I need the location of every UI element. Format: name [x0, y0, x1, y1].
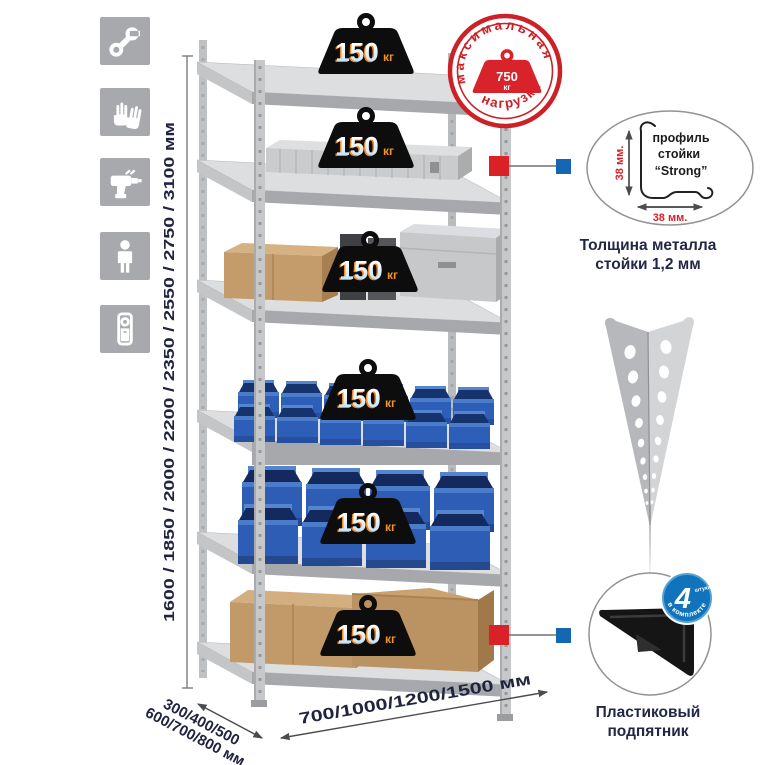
blue-marker-square	[556, 628, 571, 643]
svg-text:стойки: стойки	[658, 147, 700, 161]
foot-callout-connector	[489, 625, 571, 645]
svg-text:стойки 1,2 мм: стойки 1,2 мм	[595, 256, 700, 273]
svg-text:38 мм.: 38 мм.	[653, 212, 688, 224]
product-infographic: 150 150 кг 150 150 кг 150 150 кг 150 150…	[0, 0, 765, 765]
height-dimension: 1600 / 1850 / 2000 / 2200 / 2350 / 2550 …	[161, 56, 193, 688]
profile-caption: Толщина металла стойки 1,2 мм	[580, 237, 717, 273]
shelf-load-weight-2: 150 150 кг	[318, 110, 413, 169]
svg-text:кг: кг	[383, 50, 394, 64]
depth-dimension: 300/400/500 600/700/800 мм	[142, 690, 262, 765]
svg-text:150: 150	[337, 507, 380, 537]
cardboard-box	[224, 243, 338, 302]
svg-text:Толщина металла: Толщина металла	[580, 237, 717, 254]
svg-text:подпятник: подпятник	[607, 723, 688, 740]
svg-text:Пластиковый: Пластиковый	[596, 704, 701, 721]
svg-text:750: 750	[496, 69, 518, 84]
svg-text:150: 150	[335, 131, 378, 161]
profile-detail-circle: 38 мм. 38 мм. профиль стойки “Strong”	[587, 111, 753, 225]
red-marker-square	[489, 156, 509, 176]
svg-text:150: 150	[339, 255, 382, 285]
gloves-icon	[100, 88, 150, 136]
svg-text:кг: кг	[385, 396, 396, 410]
rack-illustration: 150 150 кг 150 150 кг 150 150 кг 150 150…	[197, 16, 513, 722]
wrench-icon	[100, 17, 150, 65]
shelf-load-weight-4: 150 150 кг	[320, 362, 415, 421]
quantity-badge: 4 штуки в комплекте	[662, 573, 713, 624]
drill-icon	[100, 158, 150, 206]
svg-text:кг: кг	[383, 144, 394, 158]
profile-callout-connector	[489, 156, 571, 176]
svg-text:кг: кг	[385, 632, 396, 646]
svg-text:38 мм.: 38 мм.	[614, 146, 626, 181]
person-icon	[100, 232, 150, 280]
level-tool-icon	[100, 305, 150, 353]
foot-caption: Пластиковый подпятник	[596, 704, 701, 740]
red-marker-square	[489, 625, 509, 645]
height-dimension-label: 1600 / 1850 / 2000 / 2200 / 2350 / 2550 …	[161, 122, 178, 622]
svg-text:кг: кг	[387, 268, 398, 282]
svg-text:150: 150	[337, 383, 380, 413]
blue-marker-square	[556, 159, 571, 174]
upright-post-image	[605, 317, 694, 585]
shelf-load-weight-1: 150 150 кг	[318, 16, 413, 75]
svg-text:150: 150	[337, 619, 380, 649]
svg-text:150: 150	[335, 37, 378, 67]
svg-text:профиль: профиль	[652, 131, 709, 145]
svg-text:“Strong”: “Strong”	[655, 164, 708, 178]
svg-text:кг: кг	[385, 520, 396, 534]
svg-text:кг: кг	[503, 83, 511, 92]
